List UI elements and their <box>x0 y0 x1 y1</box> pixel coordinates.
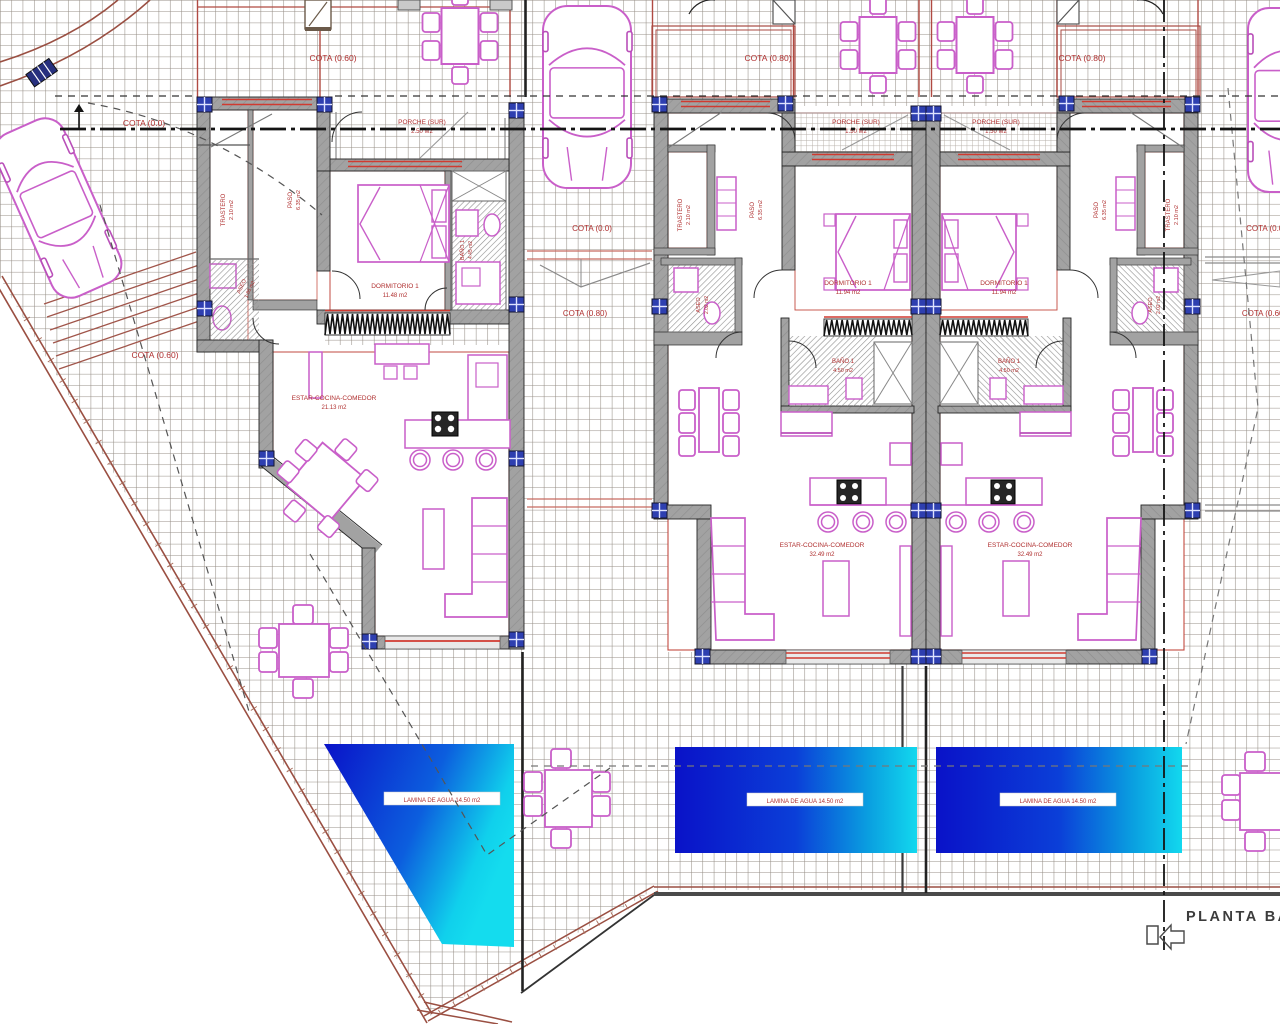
svg-text:32.49 m2: 32.49 m2 <box>809 552 835 558</box>
svg-text:LAMINA DE AGUA 14.50 m2: LAMINA DE AGUA 14.50 m2 <box>404 798 481 804</box>
svg-text:TRASTERO: TRASTERO <box>1166 198 1172 231</box>
svg-text:PASO: PASO <box>288 192 294 209</box>
svg-text:32.49 m2: 32.49 m2 <box>1017 552 1043 558</box>
svg-text:ESTAR-COCINA-COMEDOR: ESTAR-COCINA-COMEDOR <box>292 395 377 402</box>
svg-text:4.45 m2: 4.45 m2 <box>468 241 474 259</box>
svg-text:ESTAR-COCINA-COMEDOR: ESTAR-COCINA-COMEDOR <box>988 542 1073 549</box>
svg-text:COTA (0.0): COTA (0.0) <box>123 118 166 128</box>
svg-text:2.02 m2: 2.02 m2 <box>1156 296 1162 314</box>
svg-text:PORCHE (SUR): PORCHE (SUR) <box>832 119 880 126</box>
svg-text:COTA (0.60): COTA (0.60) <box>1242 309 1280 318</box>
svg-text:TRASTERO: TRASTERO <box>678 198 684 231</box>
svg-text:COTA (0.0): COTA (0.0) <box>1246 224 1280 233</box>
svg-text:2.10 m2: 2.10 m2 <box>229 200 235 220</box>
svg-text:2.02 m2: 2.02 m2 <box>704 296 710 314</box>
svg-text:ASEO: ASEO <box>696 297 702 313</box>
svg-text:6.35 m2: 6.35 m2 <box>296 190 302 210</box>
svg-text:COTA (0.60): COTA (0.60) <box>131 350 178 360</box>
svg-text:6.35 m2: 6.35 m2 <box>1102 200 1108 220</box>
svg-text:PORCHE (SUR): PORCHE (SUR) <box>972 119 1020 126</box>
svg-text:COTA (0.80): COTA (0.80) <box>563 309 608 318</box>
svg-text:6.35 m2: 6.35 m2 <box>758 200 764 220</box>
svg-text:PASO: PASO <box>1094 202 1100 219</box>
svg-text:DORMITORIO 1: DORMITORIO 1 <box>824 280 872 287</box>
svg-text:ESTAR-COCINA-COMEDOR: ESTAR-COCINA-COMEDOR <box>780 542 865 549</box>
svg-text:LAMINA DE AGUA 14.50 m2: LAMINA DE AGUA 14.50 m2 <box>1020 799 1097 805</box>
svg-text:BAÑO 1: BAÑO 1 <box>998 358 1021 365</box>
svg-text:COTA (0.80): COTA (0.80) <box>1058 53 1105 63</box>
svg-text:2.10 m2: 2.10 m2 <box>686 205 692 225</box>
svg-text:PLANTA BA: PLANTA BA <box>1186 909 1280 925</box>
svg-text:2.10 m2: 2.10 m2 <box>1174 205 1180 225</box>
svg-text:4.50 m2: 4.50 m2 <box>833 368 853 374</box>
svg-text:BAÑO 1: BAÑO 1 <box>832 358 855 365</box>
svg-text:21.13 m2: 21.13 m2 <box>321 405 347 411</box>
svg-text:DORMITORIO 1: DORMITORIO 1 <box>980 280 1028 287</box>
svg-text:COTA (0.80): COTA (0.80) <box>744 53 791 63</box>
svg-text:PORCHE (SUR): PORCHE (SUR) <box>398 119 446 126</box>
svg-text:COTA (0.60): COTA (0.60) <box>309 53 356 63</box>
svg-text:ASEO: ASEO <box>1148 297 1154 313</box>
svg-text:BAÑO 1: BAÑO 1 <box>459 240 466 260</box>
svg-text:11.48 m2: 11.48 m2 <box>383 293 408 299</box>
svg-text:4.50 m2: 4.50 m2 <box>999 368 1019 374</box>
svg-text:DORMITORIO 1: DORMITORIO 1 <box>371 283 419 290</box>
svg-text:11.94 m2: 11.94 m2 <box>836 290 861 296</box>
svg-text:LAMINA DE AGUA 14.50 m2: LAMINA DE AGUA 14.50 m2 <box>767 799 844 805</box>
svg-text:COTA (0.0): COTA (0.0) <box>572 224 612 233</box>
svg-text:PASO: PASO <box>750 202 756 219</box>
svg-text:TRASTERO: TRASTERO <box>221 193 227 226</box>
svg-text:11.94 m2: 11.94 m2 <box>992 290 1017 296</box>
